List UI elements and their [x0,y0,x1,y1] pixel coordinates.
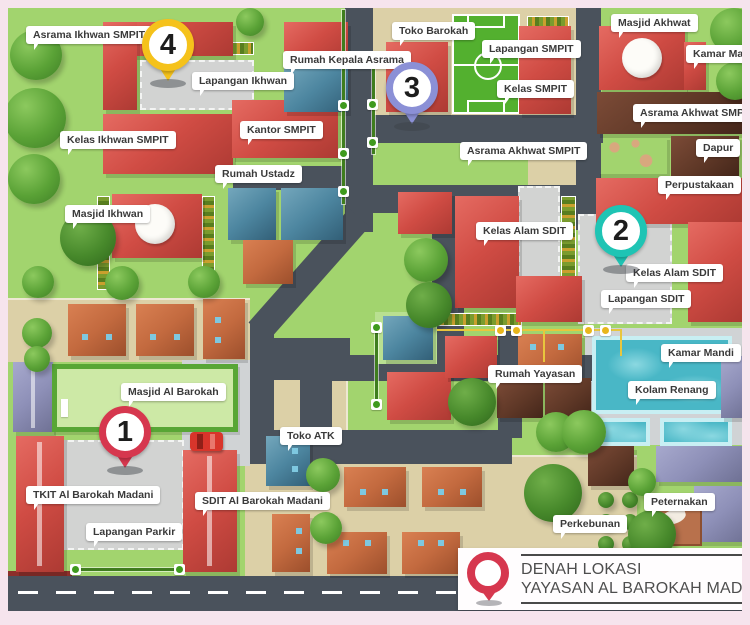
building-tan-house-1 [68,304,126,356]
yellow-dot [600,325,611,336]
map-label-asrama-akhwat-smpit: Asrama Akhwat SMPIT [633,104,742,122]
location-pin-4: 4 [142,19,194,88]
building-rumah-yayasan-4 [497,380,543,418]
soccer-goal-box-bottom [467,100,505,114]
road-horizontal-top [345,115,603,143]
green-dot [371,322,382,333]
building-peternakan-a [656,446,742,482]
title-line-1: DENAH LOKASI [521,560,742,579]
title-card: DENAH LOKASI YAYASAN AL BAROKAH MADANI [458,548,742,610]
building-house-2 [344,467,406,507]
building-pattern-brown [597,136,667,174]
yellow-line-h [437,329,622,331]
tree [22,318,52,348]
building-house-1 [272,514,310,572]
pin-shadow [150,79,186,88]
pin-3-number: 3 [386,62,438,114]
building-small-mosque [243,240,293,284]
title-pin-shadow [476,600,502,606]
map-label-kamar-mandi: Kamar Mandi [686,45,742,63]
campus-map-screenshot: Asrama Ikhwan SMPITLapangan IkhwanRumah … [0,0,750,625]
pin-4-number: 4 [142,19,194,71]
pool-small-right [660,418,732,446]
crop-bush [598,492,614,508]
masjid-akhwat-dome [622,38,662,78]
building-kelas-alam-tall [455,196,519,308]
map-label-kelas-ikhwan-smpit: Kelas Ikhwan SMPIT [60,131,176,149]
red-car [190,432,223,451]
building-kelas-alam-pyramid [516,276,582,322]
map-label-rumah-yayasan: Rumah Yayasan [488,365,582,383]
map-label-asrama-akhwat-smpit: Asrama Akhwat SMPIT [460,142,587,160]
location-pin-2: 2 [595,205,647,274]
map-label-rumah-ustadz: Rumah Ustadz [215,165,302,183]
building-kelas-alam-house [398,192,452,234]
map-label-toko-barokah: Toko Barokah [392,22,475,40]
map-label-perkebunan: Perkebunan [553,515,627,533]
soccer-mid-line [454,64,518,66]
tree [524,464,582,522]
green-dot [367,137,378,148]
map-label-kelas-smpit: Kelas SMPIT [497,80,574,98]
pin-1-number: 1 [99,406,151,458]
yellow-dot [511,325,522,336]
yellow-dot [583,325,594,336]
pin-shadow [394,122,430,131]
pin-2-number: 2 [595,205,647,257]
tree [105,266,139,300]
building-tan-house-3 [203,299,245,359]
map-label-masjid-al-barokah: Masjid Al Barokah [121,383,226,401]
tree [628,468,656,496]
building-sdit [183,450,237,572]
map-label-kamar-mandi: Kamar Mandi [661,344,741,362]
tree [562,410,606,454]
hedge-top-left [232,42,254,55]
tree [306,458,340,492]
map-label-kantor-smpit: Kantor SMPIT [240,121,323,139]
location-pin-3: 3 [386,62,438,131]
masjid-gate [61,399,68,417]
campus-map: Asrama Ikhwan SMPITLapangan IkhwanRumah … [8,8,742,611]
building-house-3 [422,467,482,507]
tree [24,346,50,372]
map-label-lapangan-ikhwan: Lapangan Ikhwan [192,72,294,90]
green-dot [70,564,81,575]
pin-shadow [603,265,639,274]
yellow-line-v2 [620,329,622,356]
map-label-lapangan-sdit: Lapangan SDIT [601,290,691,308]
map-label-lapangan-parkir: Lapangan Parkir [86,523,182,541]
yellow-dot [495,325,506,336]
map-title: DENAH LOKASI YAYASAN AL BAROKAH MADANI [521,554,742,604]
map-label-dapur: Dapur [696,139,740,157]
building-house-5 [402,532,460,574]
map-label-sdit-al-barokah-madani: SDIT Al Barokah Madani [195,492,330,510]
tree [8,88,66,148]
green-line-center [375,325,378,405]
map-label-perpustakaan: Perpustakaan [658,176,741,194]
map-label-kolam-renang: Kolam Renang [628,381,716,399]
location-pin-1: 1 [99,406,151,475]
tree [236,8,264,36]
green-dot [174,564,185,575]
tree [448,378,496,426]
building-purple-left [13,362,53,432]
title-pin-circle [467,552,509,594]
building-rumah-ustadz-1 [228,188,276,240]
map-label-tkit-al-barokah-madani: TKIT Al Barokah Madani [26,486,160,504]
pin-shadow [107,466,143,475]
map-label-masjid-akhwat: Masjid Akhwat [611,14,698,32]
tree [310,512,342,544]
map-label-peternakan: Peternakan [644,493,715,511]
green-dot [367,99,378,110]
map-label-lapangan-smpit: Lapangan SMPIT [482,40,581,58]
tree [404,238,448,282]
green-dot [338,186,349,197]
tree [8,154,60,204]
building-tan-house-2 [136,304,194,356]
map-label-masjid-ikhwan: Masjid Ikhwan [65,205,150,223]
map-label-asrama-ikhwan-smpit: Asrama Ikhwan SMPIT [26,26,152,44]
green-dot [371,399,382,410]
map-label-kelas-alam-sdit: Kelas Alam SDIT [476,222,573,240]
tree [188,266,220,298]
title-pin-icon [467,552,511,606]
building-kamar-mandi-pool [721,356,742,418]
green-dot [338,148,349,159]
green-dot [338,100,349,111]
building-rumah-yayasan-1 [387,372,451,420]
map-label-toko-atk: Toko ATK [280,427,342,445]
yellow-line-v1 [543,329,545,362]
green-line-parking [74,568,178,571]
tree [22,266,54,298]
title-line-2: YAYASAN AL BAROKAH MADANI [521,579,742,598]
tree [406,282,452,328]
building-rumah-ustadz-2 [281,188,343,240]
